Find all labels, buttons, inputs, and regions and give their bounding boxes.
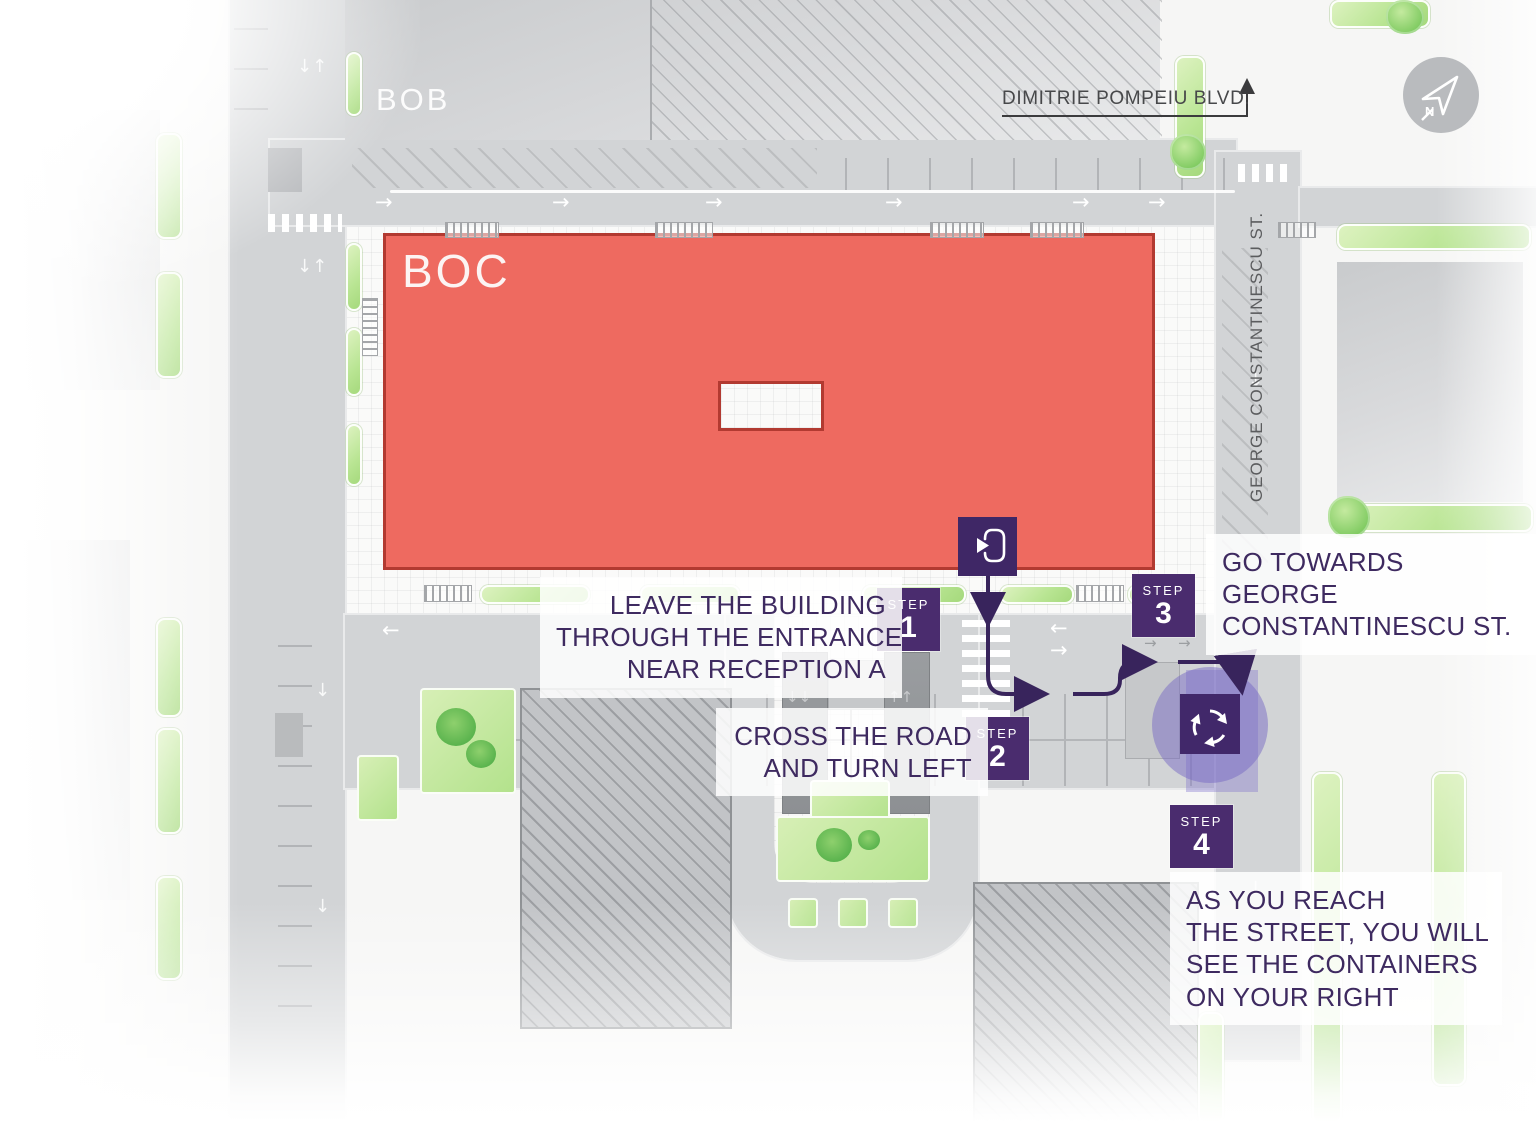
lawn-patch: [357, 755, 399, 821]
hedge-strip: [156, 876, 182, 980]
entrance-stairs: [1076, 585, 1124, 602]
hedge-strip: [346, 52, 362, 116]
crosswalk-george-st: [1238, 164, 1290, 182]
lane-arrow-right: →: [1050, 640, 1068, 661]
bush: [466, 740, 496, 768]
step-3-note: GO TOWARDS GEORGE CONSTANTINESCU ST.: [1206, 534, 1536, 655]
step-4-number: 4: [1170, 830, 1233, 860]
lane-arrow-right: →: [552, 192, 570, 213]
planter: [838, 898, 868, 928]
step-2-note: CROSS THE ROAD AND TURN LEFT: [716, 708, 988, 796]
lane-arrow-down: ↓: [315, 898, 330, 916]
lane-arrow-down: ↓: [315, 682, 330, 700]
lane-arrow-right: →: [705, 192, 723, 213]
road-side-stub: [1300, 188, 1536, 226]
step-1-note: LEAVE THE BUILDING THROUGH THE ENTRANCE …: [540, 577, 902, 698]
lane-arrows-two-way: ↓↑: [297, 258, 327, 276]
lane-arrow-right: →: [375, 192, 393, 213]
building-faded-left-1: [0, 110, 160, 390]
bush: [816, 828, 852, 862]
wayfinding-map: → → → → → → ↓↑ ↓↑ ↓ ↓ ← → ← → → ↓ ↓ BOB …: [0, 0, 1536, 1122]
entrance-stairs: [655, 222, 713, 238]
entrance-stairs: [424, 585, 472, 602]
lane-arrow-right-small: →: [1178, 636, 1191, 651]
step-4-line: ON YOUR RIGHT: [1186, 981, 1486, 1013]
road-edge-line: [390, 190, 1235, 193]
tree: [1328, 496, 1370, 538]
building-boc-label: BOC: [402, 244, 511, 298]
hedge-strip: [156, 618, 182, 717]
building-hatched-south: [520, 688, 732, 1029]
step-1-line: NEAR RECEPTION A: [556, 653, 886, 685]
hedge-strip: [1198, 1012, 1224, 1122]
step-4-line: SEE THE CONTAINERS: [1186, 948, 1486, 980]
hedge-strip: [156, 272, 182, 378]
building-faded-left-2: [0, 540, 130, 900]
planter: [888, 898, 918, 928]
hedge-strip: [156, 728, 182, 834]
tree: [1170, 134, 1206, 170]
parking-ticks-left-bottom: [278, 645, 312, 1025]
building-right: [1337, 262, 1523, 502]
exit-door-icon: [958, 517, 1017, 576]
lane-arrow-right-small: →: [1144, 636, 1157, 651]
step-2-line: CROSS THE ROAD: [732, 720, 972, 752]
step-4-line: THE STREET, YOU WILL: [1186, 916, 1486, 948]
building-boc-courtyard: [718, 381, 824, 431]
building-bob-hatched-wing: [650, 0, 1162, 140]
compass-north-icon: N: [1402, 56, 1480, 134]
compass-n-letter: N: [1425, 104, 1434, 119]
step-1-line: THROUGH THE ENTRANCE: [556, 621, 886, 653]
hedge-strip: [346, 328, 362, 396]
building-hatched-southeast: [973, 882, 1199, 1122]
lane-arrows-two-way: ↓↑: [297, 58, 327, 76]
step-1-line: LEAVE THE BUILDING: [556, 589, 886, 621]
step-3-number: 3: [1132, 599, 1195, 629]
building-bob-label: BOB: [376, 82, 450, 118]
lawn-driveway: [776, 816, 930, 882]
bush: [436, 708, 476, 746]
hedge-strip: [1000, 585, 1074, 604]
step-4-line: AS YOU REACH: [1186, 884, 1486, 916]
lane-arrow-right: →: [1072, 192, 1090, 213]
lane-arrow-turn: →: [1148, 192, 1166, 213]
hedge-strip: [346, 424, 362, 486]
step-3-label: STEP: [1132, 583, 1195, 598]
entrance-stairs: [1030, 222, 1084, 238]
parked-car-block-2: [275, 713, 303, 757]
street-label-george-constantinescu: GEORGE CONSTANTINESCU ST.: [1247, 207, 1267, 507]
hedge-strip: [1337, 224, 1531, 250]
bush: [858, 830, 880, 850]
lane-arrow-left: ←: [1050, 618, 1068, 639]
hedge-strip: [346, 243, 362, 311]
entrance-stairs: [1278, 222, 1316, 238]
tree: [1386, 0, 1424, 34]
step-4-note: AS YOU REACH THE STREET, YOU WILL SEE TH…: [1170, 872, 1502, 1025]
crosswalk-left-street: [268, 214, 342, 232]
step-3-badge: STEP 3: [1132, 574, 1195, 637]
recycling-icon: [1180, 694, 1240, 754]
parking-hatch-top: [352, 148, 817, 188]
lane-arrow-left: ←: [382, 620, 400, 641]
step-4-label: STEP: [1170, 814, 1233, 829]
planter: [788, 898, 818, 928]
parking-ticks-left-top: [234, 28, 268, 143]
step-3-line: CONSTANTINESCU ST.: [1222, 610, 1522, 642]
lane-arrow-right: →: [885, 192, 903, 213]
entrance-stairs: [362, 298, 378, 356]
street-label-dimitrie-pompeiu: DIMITRIE POMPEIU BLVD.: [1002, 88, 1250, 110]
entrance-stairs: [930, 222, 984, 238]
hedge-strip: [156, 133, 182, 239]
parked-car-block: [268, 148, 302, 192]
step-3-line: GO TOWARDS: [1222, 546, 1522, 578]
step-3-line: GEORGE: [1222, 578, 1522, 610]
step-4-badge: STEP 4: [1170, 805, 1233, 868]
step-2-line: AND TURN LEFT: [732, 752, 972, 784]
entrance-stairs: [445, 222, 499, 238]
